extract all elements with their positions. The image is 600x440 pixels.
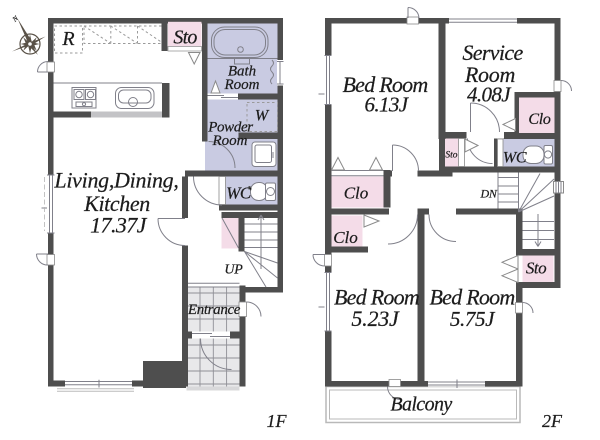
svg-text:Room: Room: [212, 133, 248, 149]
svg-text:WC: WC: [226, 184, 252, 203]
svg-text:Balcony: Balcony: [390, 394, 452, 416]
svg-text:5.75J: 5.75J: [450, 307, 496, 331]
svg-text:Living,Dining,: Living,Dining,: [53, 168, 178, 193]
svg-text:Clo: Clo: [344, 184, 369, 203]
svg-text:W: W: [255, 108, 270, 125]
svg-text:Bed Room: Bed Room: [429, 285, 514, 310]
svg-text:17.37J: 17.37J: [90, 213, 148, 238]
svg-text:Room: Room: [224, 77, 260, 93]
svg-text:4.08J: 4.08J: [467, 83, 512, 107]
svg-text:UP: UP: [224, 263, 243, 278]
svg-text:Sto: Sto: [173, 27, 197, 49]
svg-text:DN: DN: [479, 187, 497, 201]
svg-text:R: R: [61, 28, 74, 50]
svg-text:2F: 2F: [542, 411, 563, 431]
svg-text:5.23J: 5.23J: [351, 306, 400, 331]
svg-text:WC: WC: [503, 150, 527, 167]
svg-text:Clo: Clo: [528, 111, 551, 128]
svg-text:Entrance: Entrance: [187, 302, 241, 318]
svg-text:Clo: Clo: [333, 228, 358, 247]
svg-text:6.13J: 6.13J: [364, 93, 409, 117]
svg-text:Sto: Sto: [526, 259, 546, 278]
svg-text:Sto: Sto: [445, 151, 457, 161]
svg-text:1F: 1F: [267, 411, 288, 431]
